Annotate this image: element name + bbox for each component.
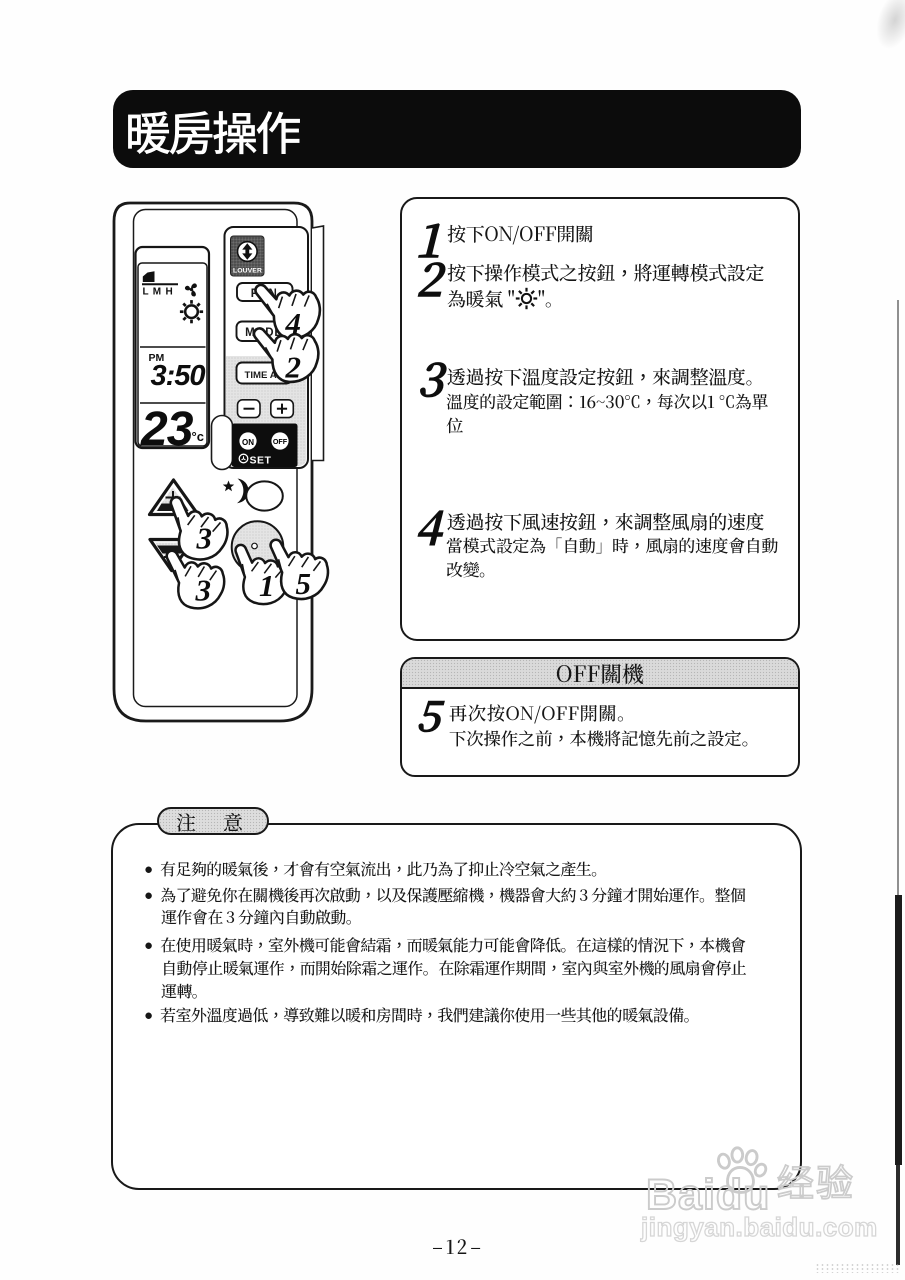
svg-text:3: 3 (195, 573, 212, 608)
svg-text:°c: °c (192, 429, 204, 444)
svg-text:2: 2 (285, 350, 302, 385)
svg-text:L M H: L M H (143, 287, 174, 298)
svg-text:SET: SET (250, 455, 272, 467)
svg-text:4: 4 (285, 306, 302, 341)
svg-text:5: 5 (296, 566, 312, 601)
svg-text:ON: ON (242, 438, 254, 447)
svg-text:1: 1 (259, 568, 275, 603)
svg-text:3: 3 (196, 521, 213, 556)
svg-text:LOUVER: LOUVER (233, 268, 262, 275)
svg-text:OFF: OFF (273, 437, 288, 446)
svg-text:23: 23 (140, 403, 194, 456)
svg-text:3:50: 3:50 (151, 360, 206, 392)
